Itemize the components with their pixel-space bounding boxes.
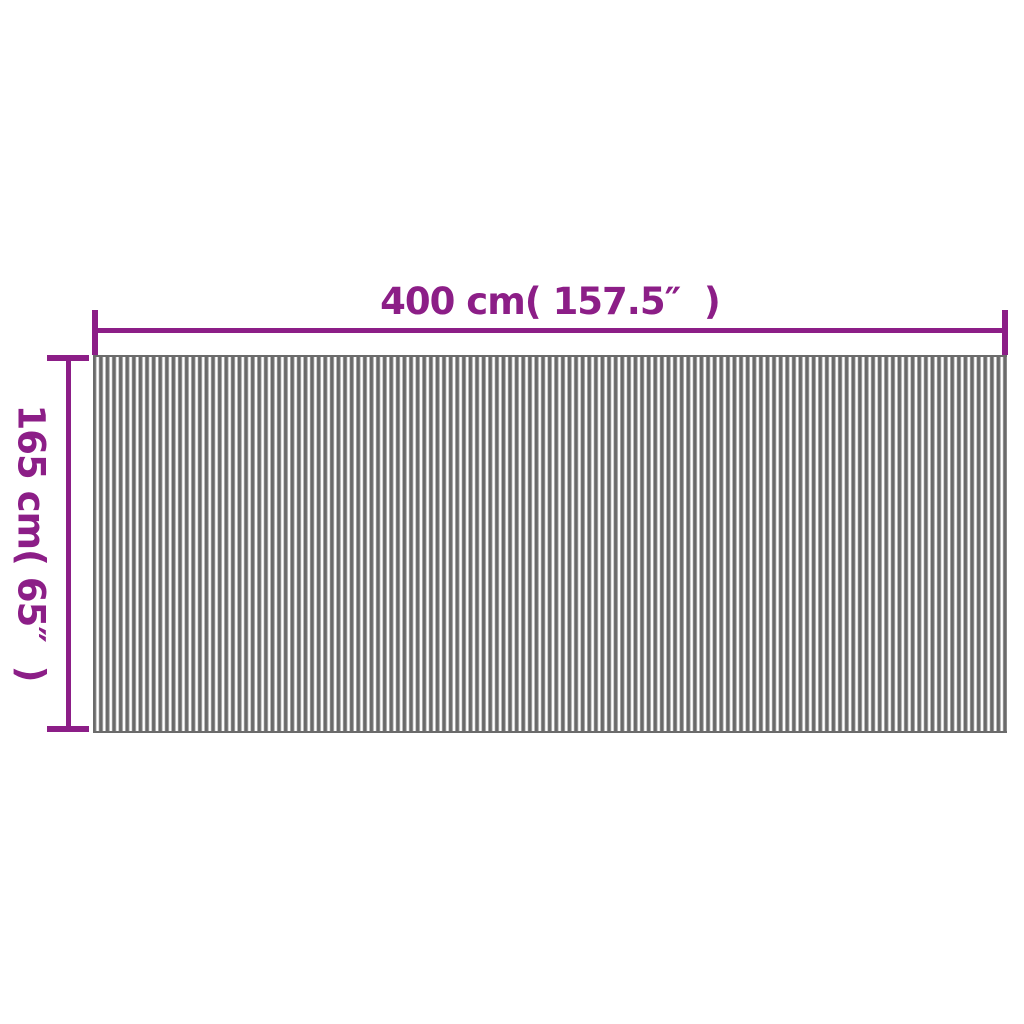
striped-panel-image bbox=[93, 355, 1007, 733]
height-dimension-cap-bottom bbox=[47, 726, 89, 732]
height-dimension-line bbox=[66, 357, 71, 731]
product-dimension-diagram: 400 cm( 157.5″ ) 165 cm( 65″ ) bbox=[0, 0, 1024, 1024]
height-dimension-label: 165 cm( 65″ ) bbox=[13, 404, 50, 681]
width-dimension-label: 400 cm( 157.5″ ) bbox=[92, 283, 1008, 320]
width-dimension-cap-right bbox=[1002, 310, 1008, 355]
width-dimension-line bbox=[92, 328, 1008, 333]
width-dimension-cap-left bbox=[92, 310, 98, 355]
height-dimension-cap-top bbox=[47, 355, 89, 361]
